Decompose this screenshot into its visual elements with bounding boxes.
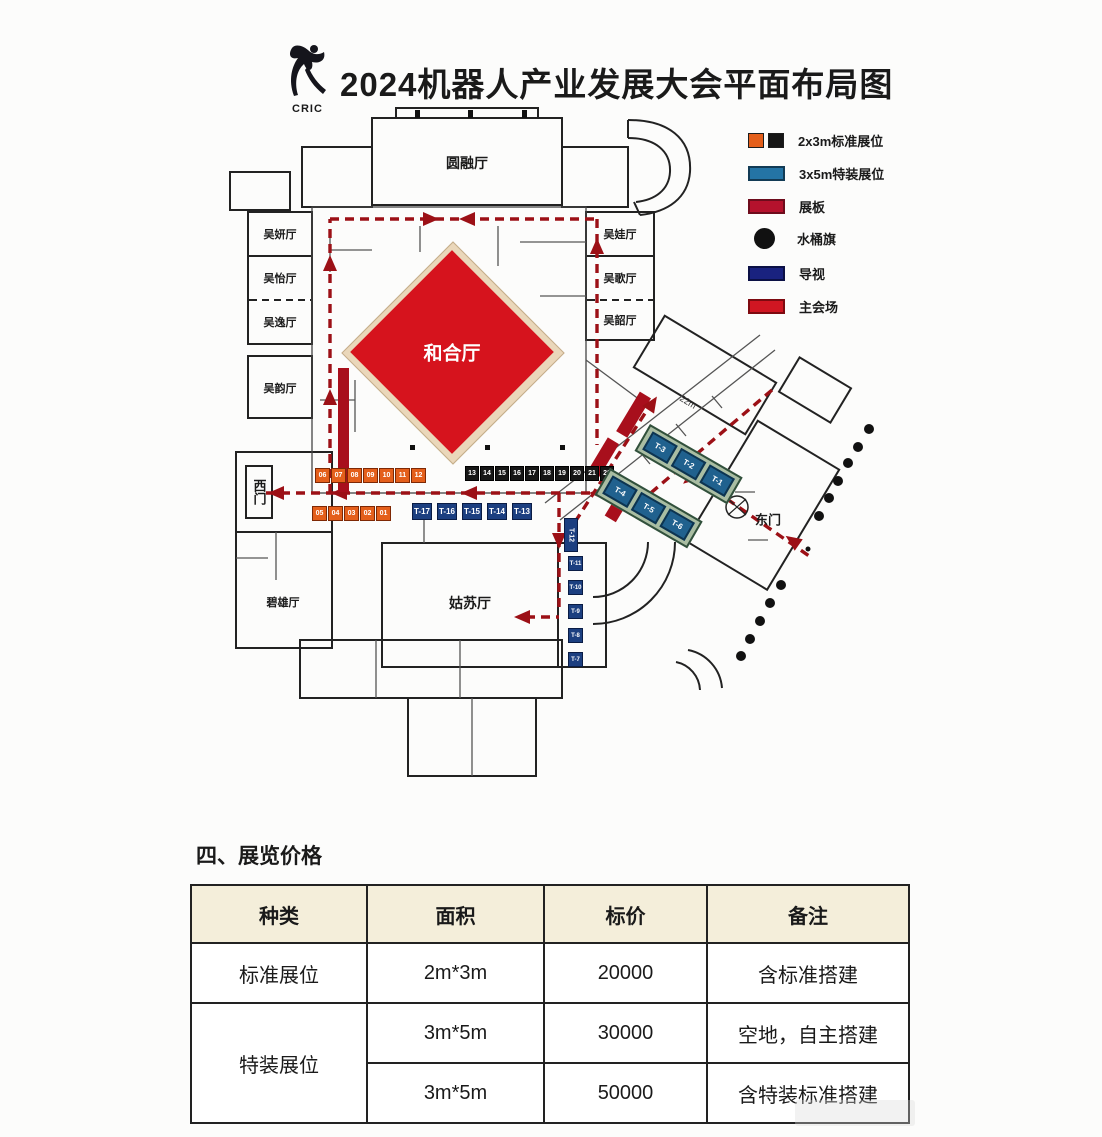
cell-price: 20000 [544, 943, 707, 1003]
signage-booth: T-9 [568, 604, 583, 619]
room-label-wuyi: 吴怡厅 [264, 270, 297, 286]
booth: 16 [510, 466, 524, 481]
cell-area: 3m*5m [367, 1003, 544, 1063]
pricing-row-standard: 标准展位 2m*3m 20000 含标准搭建 [191, 943, 909, 1003]
signage-booth: T-16 [437, 503, 457, 520]
signage-booth: T-14 [487, 503, 507, 520]
room-label-wuyan: 吴妍厅 [264, 226, 297, 242]
signage-booth: T-7 [568, 652, 583, 667]
booth: 10 [379, 468, 394, 483]
signage-row-t17-t13: T-17 T-16 T-15 T-14 T-13 [412, 503, 537, 520]
room-label-bixiong: 碧雄厅 [267, 594, 300, 610]
booth: 06 [315, 468, 330, 483]
signage-booth: T-8 [568, 628, 583, 643]
booth: 08 [347, 468, 362, 483]
booth: 02 [360, 506, 375, 521]
pricing-header-row: 种类 面积 标价 备注 [191, 885, 909, 943]
booth: 09 [363, 468, 378, 483]
cell-price: 30000 [544, 1003, 707, 1063]
signage-booth: T-11 [568, 556, 583, 571]
room-label-wuyun: 吴韵厅 [264, 380, 297, 396]
col-header-type: 种类 [191, 885, 367, 943]
pricing-section-title: 四、展览价格 [196, 840, 322, 870]
booth: 20 [570, 466, 584, 481]
col-header-price: 标价 [544, 885, 707, 943]
booth: 18 [540, 466, 554, 481]
room-label-yuanrong: 圆融厅 [446, 153, 488, 173]
page: CRIC 2024机器人产业发展大会平面布局图 2x3m标准展位 3x5m特装展… [0, 0, 1102, 1137]
standard-booth-row-06-12: 06 07 08 09 10 11 12 [315, 468, 427, 483]
room-label-wushao: 吴韶厅 [604, 312, 637, 328]
booth: 03 [344, 506, 359, 521]
cell-area: 2m*3m [367, 943, 544, 1003]
col-header-note: 备注 [707, 885, 909, 943]
booth: 07 [331, 468, 346, 483]
room-label-wuyi2: 吴逸厅 [264, 314, 297, 330]
signage-booth: T-15 [462, 503, 482, 520]
cell-note: 空地，自主搭建 [707, 1003, 909, 1063]
watermark [795, 1100, 915, 1126]
signage-col-t11-t7: T-11 T-10 T-9 T-8 T-7 [568, 556, 583, 667]
signage-booth-t12: T-12 [564, 518, 578, 552]
col-header-area: 面积 [367, 885, 544, 943]
booth: 19 [555, 466, 569, 481]
floorplan-linework [0, 0, 1102, 830]
booth: 05 [312, 506, 327, 521]
booth: 14 [480, 466, 494, 481]
cell-type: 特装展位 [191, 1003, 367, 1123]
pricing-row-special-1: 特装展位 3m*5m 30000 空地，自主搭建 [191, 1003, 909, 1063]
booth: 15 [495, 466, 509, 481]
standard-booth-row-05-01: 05 04 03 02 01 [312, 506, 392, 521]
booth: 01 [376, 506, 391, 521]
cell-note: 含标准搭建 [707, 943, 909, 1003]
standard-booth-row-13-22: 13 14 15 16 17 18 19 20 21 22 [465, 466, 615, 481]
booth: 11 [395, 468, 410, 483]
room-label-hehe: 和合厅 [423, 339, 480, 366]
cell-type: 标准展位 [191, 943, 367, 1003]
signage-booth: T-10 [568, 580, 583, 595]
cell-price: 50000 [544, 1063, 707, 1123]
cell-area: 3m*5m [367, 1063, 544, 1123]
booth: 13 [465, 466, 479, 481]
water-flag-dots [736, 424, 874, 661]
gate-label-west: 西门 [250, 479, 269, 505]
booth: 12 [411, 468, 426, 483]
gate-label-east: 东门 [755, 510, 781, 529]
booth: 17 [525, 466, 539, 481]
room-label-wuge: 吴歌厅 [604, 270, 637, 286]
pricing-table: 种类 面积 标价 备注 标准展位 2m*3m 20000 含标准搭建 特装展位 … [190, 884, 910, 1124]
signage-booth: T-17 [412, 503, 432, 520]
room-label-gusu: 姑苏厅 [449, 593, 491, 613]
booth: 21 [585, 466, 599, 481]
booth: 04 [328, 506, 343, 521]
room-label-wuwa: 吴娃厅 [604, 226, 637, 242]
signage-booth: T-13 [512, 503, 532, 520]
